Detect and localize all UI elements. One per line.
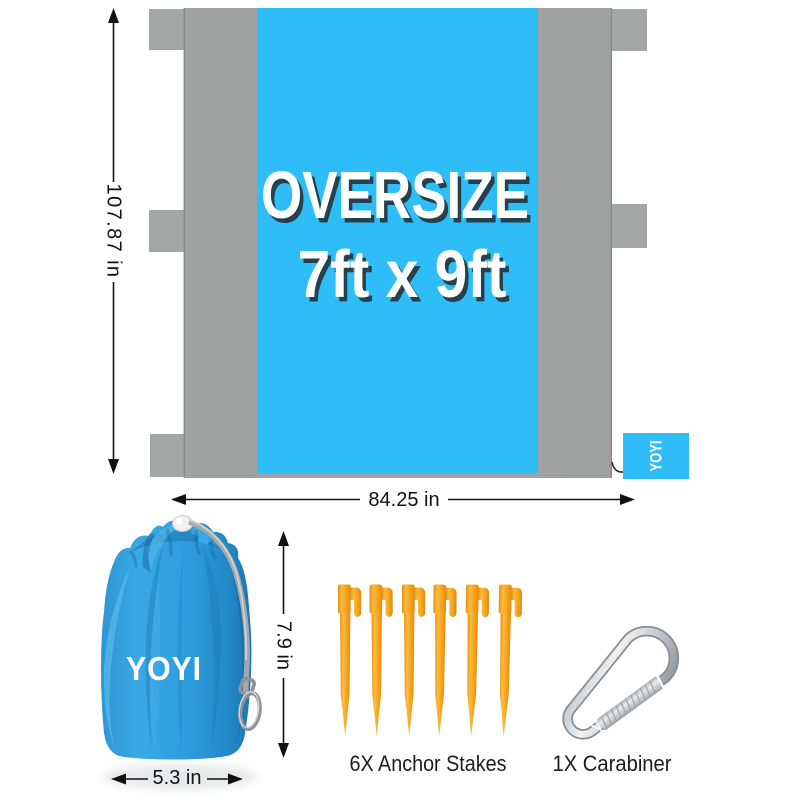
svg-text:YOYI: YOYI <box>647 441 666 472</box>
svg-text:107.87 in: 107.87 in <box>103 184 125 279</box>
svg-text:5.3 in: 5.3 in <box>153 767 202 789</box>
svg-text:YOYI: YOYI <box>126 650 202 687</box>
svg-text:84.25 in: 84.25 in <box>368 489 439 511</box>
svg-text:7.9 in: 7.9 in <box>273 621 295 670</box>
svg-text:6X Anchor Stakes: 6X Anchor Stakes <box>350 751 507 776</box>
svg-text:7ft x 9ft: 7ft x 9ft <box>298 237 507 312</box>
svg-text:OVERSIZE: OVERSIZE <box>261 158 529 233</box>
svg-text:1X Carabiner: 1X Carabiner <box>553 751 672 776</box>
